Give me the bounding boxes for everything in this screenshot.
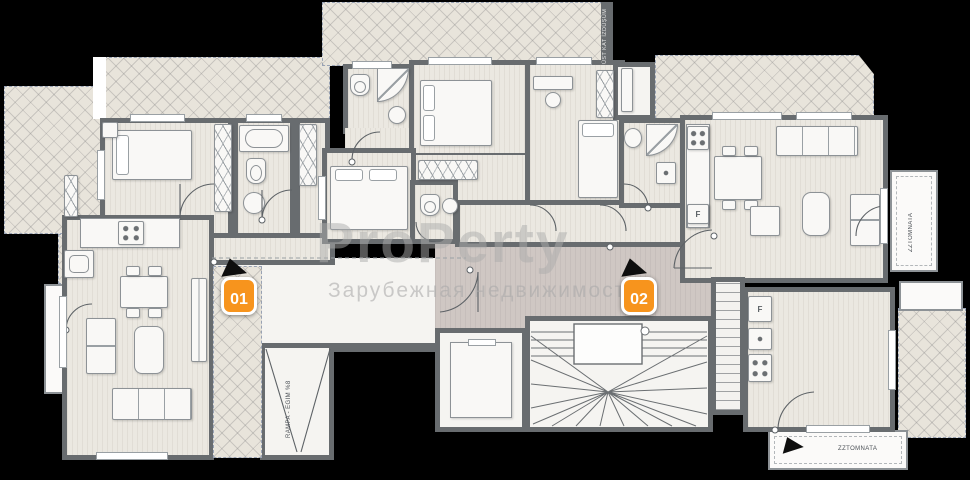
label-roof-projection: ÜST KAT İZDÜŞÜM [602, 8, 608, 64]
window [59, 296, 67, 368]
window [96, 452, 168, 460]
entrance-arrow-u01 [219, 256, 247, 276]
window [352, 61, 392, 69]
hinge-marks [63, 159, 778, 433]
window [428, 57, 492, 65]
window [880, 188, 888, 244]
label-ramp: RAMPA - EĞİM %8 [286, 358, 292, 438]
label-terrace-right: ZZTOMNATA [908, 192, 914, 252]
window [796, 112, 852, 120]
label-balcony-bottom: ZZTOMNATA [838, 446, 877, 452]
stair-post [641, 327, 649, 335]
window [806, 425, 870, 433]
window [712, 112, 782, 120]
entrance-arrow-u02 [619, 256, 647, 276]
window [246, 114, 282, 122]
window [97, 150, 105, 200]
plan-linework [0, 0, 970, 480]
window [536, 57, 592, 65]
floor-plan: F F [0, 0, 970, 480]
elevator-door [468, 339, 496, 346]
stair-landing [574, 324, 642, 364]
window [318, 176, 326, 220]
window [888, 330, 896, 390]
unit-02-badge[interactable]: 02 [621, 277, 657, 315]
door-arcs [66, 132, 884, 428]
window [130, 114, 185, 122]
ramp-lines [266, 349, 330, 452]
unit-01-badge[interactable]: 01 [221, 277, 257, 315]
